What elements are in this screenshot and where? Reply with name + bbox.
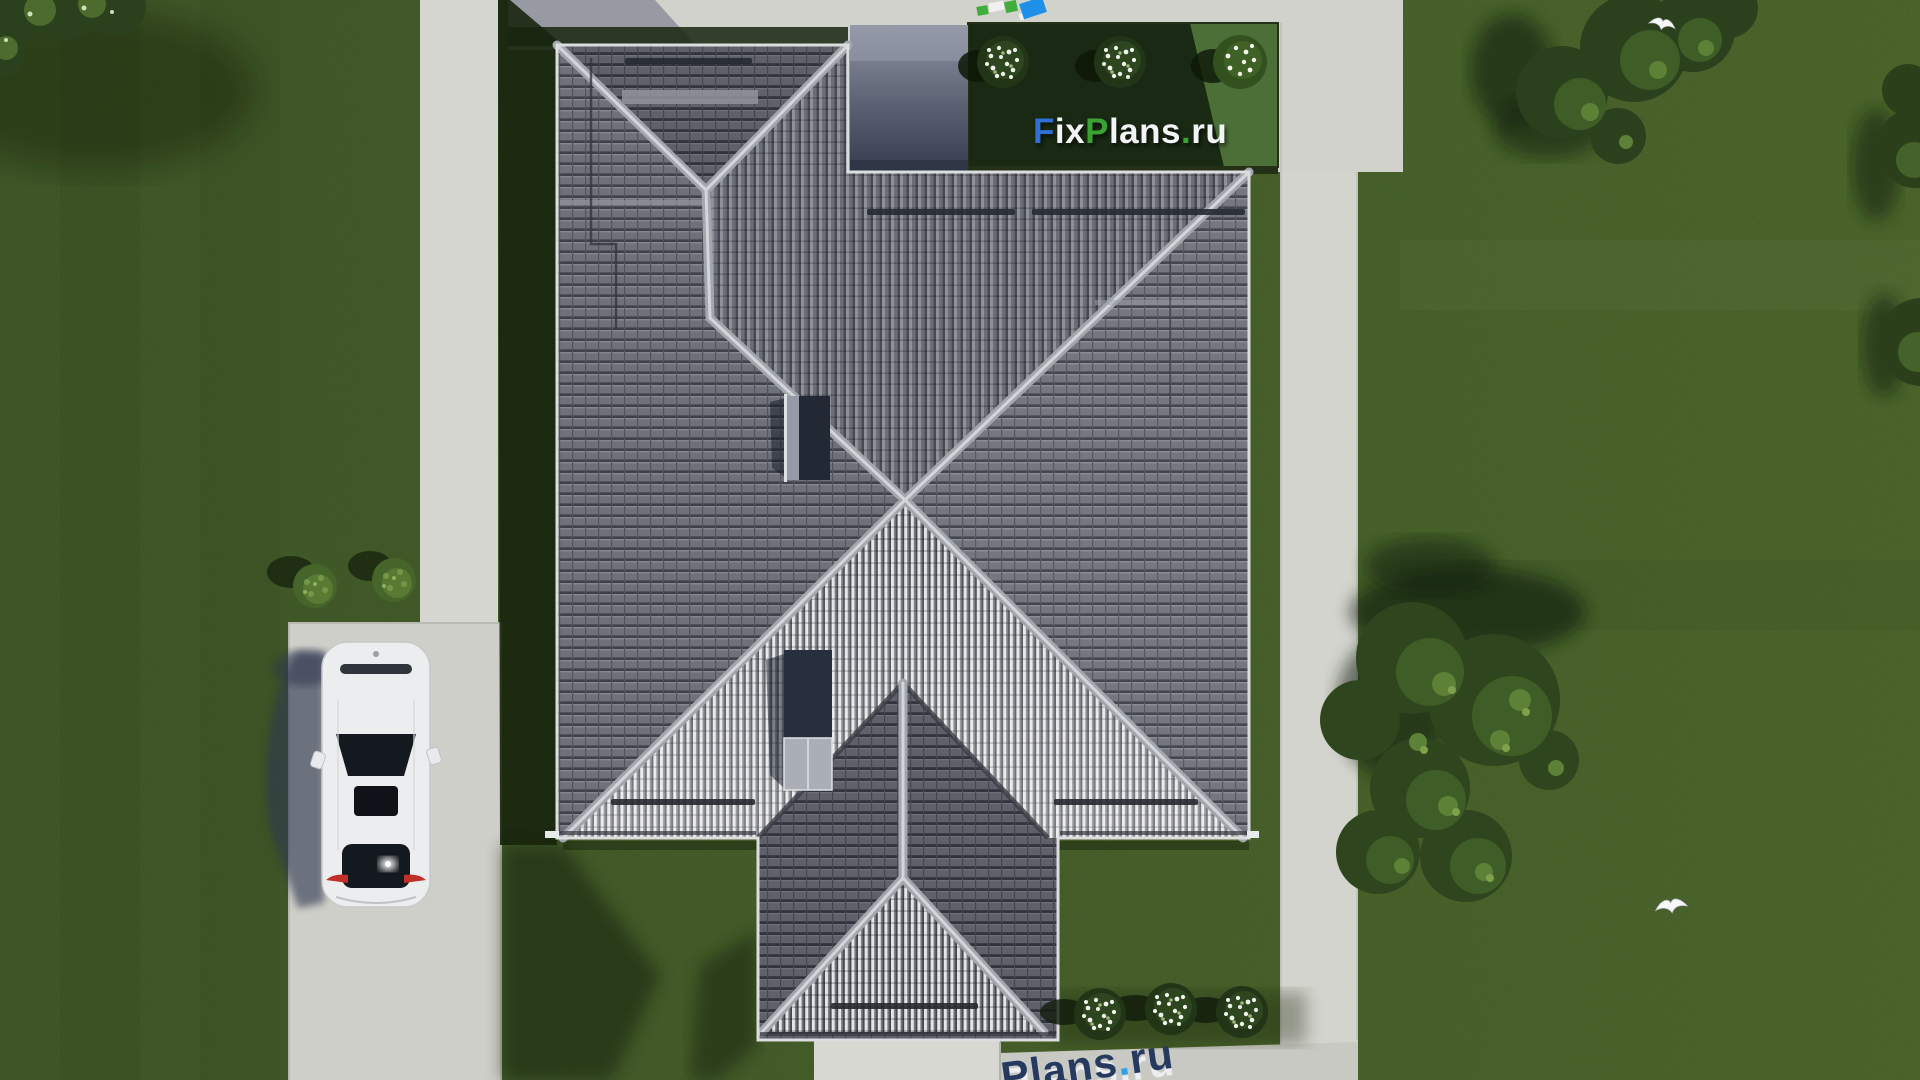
patio	[814, 1040, 1000, 1080]
watermark-letters-lans: lans	[1109, 112, 1181, 151]
roof-skylight-bar	[622, 90, 758, 104]
logo-square-blue-icon	[1019, 0, 1047, 19]
terrace	[850, 25, 968, 172]
car-rear-window	[342, 844, 410, 888]
path-left	[420, 0, 498, 630]
watermark-letter-p: P	[1085, 112, 1109, 151]
watermark-dot: .	[1181, 112, 1191, 151]
logo-square-green-icon	[1004, 0, 1018, 13]
path-right	[1280, 170, 1358, 1080]
chimney-lower	[766, 650, 832, 790]
watermark-letters-ix: ix	[1055, 112, 1085, 151]
green-bush	[293, 564, 337, 608]
flower-bush	[977, 36, 1029, 88]
logo-square-white-icon	[988, 1, 1004, 12]
gutter-end-left	[545, 831, 559, 838]
gutter-end-right	[1247, 831, 1259, 838]
flower-bush	[1094, 36, 1146, 88]
aerial-render-viewport: FixPlans.ru Plans.ru	[0, 0, 1920, 1080]
chimney-upper	[770, 394, 830, 482]
fixplans-logo-icon	[975, 0, 1053, 22]
car	[266, 642, 442, 908]
watermark-fixplans: FixPlans.ru	[1033, 112, 1227, 152]
flower-bush	[1145, 983, 1197, 1035]
watermark-bottom-ru: ru	[1126, 1030, 1176, 1080]
car-windshield	[336, 734, 416, 776]
watermark-letter-f: F	[1033, 112, 1055, 151]
flower-bush	[1213, 35, 1267, 89]
watermark-letters-ru: ru	[1191, 112, 1227, 151]
flower-bush	[1074, 988, 1126, 1040]
scene-svg	[0, 0, 1920, 1080]
logo-square-green-icon	[976, 5, 988, 16]
car-sunroof	[354, 786, 398, 816]
green-bush	[372, 558, 416, 602]
flower-bush	[1216, 986, 1268, 1038]
